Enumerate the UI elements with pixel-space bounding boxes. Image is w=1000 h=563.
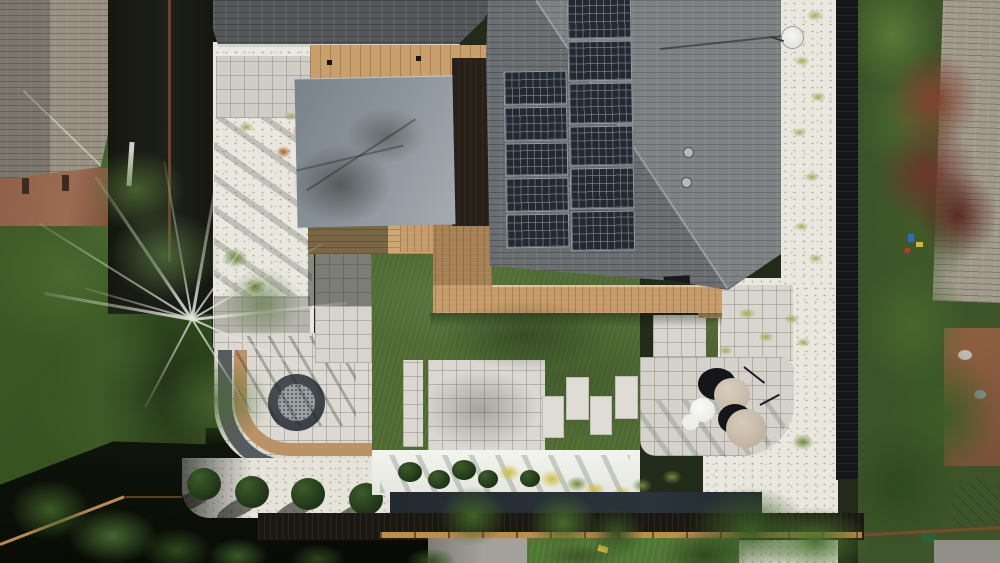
stepping-stone <box>591 397 611 434</box>
toy-yellow <box>916 242 923 247</box>
boardwalk-tree <box>588 508 644 558</box>
neighbor-pavement <box>934 540 1000 563</box>
ornamental-grass <box>796 338 811 347</box>
solar-panel <box>571 210 636 252</box>
tree-shadow-on-turf <box>440 300 610 370</box>
stepping-stone <box>543 397 563 437</box>
solar-panel <box>504 106 568 141</box>
roof-vent <box>684 148 693 157</box>
solar-panel <box>570 167 635 209</box>
deck-steps-shadow <box>308 224 388 254</box>
ornamental-grass <box>794 222 809 231</box>
rusty-fence-rail <box>168 0 171 262</box>
solar-panel <box>568 82 633 124</box>
yellow-flower-clump <box>498 464 520 481</box>
beige-umbrella <box>726 409 766 448</box>
pergola-post <box>416 56 421 61</box>
deck-post <box>62 175 69 191</box>
solar-panel <box>506 214 570 249</box>
ball-shrub <box>187 468 221 500</box>
deck-post <box>22 178 29 194</box>
toy-red <box>905 248 910 253</box>
maple-tree-burgundy <box>918 170 998 260</box>
rust-plant <box>276 146 291 158</box>
tree-shadow-on-patio <box>420 370 540 450</box>
small-plant <box>222 248 248 268</box>
ornamental-grass <box>718 346 733 355</box>
deck-shade-strip <box>452 58 492 226</box>
solar-panel-column-right <box>567 0 635 252</box>
solar-panel <box>503 70 567 105</box>
stepping-stone <box>567 378 588 419</box>
small-shrub <box>662 470 682 484</box>
solar-panel <box>505 178 569 213</box>
ornamental-grass <box>238 122 254 132</box>
deck-edge-highlight <box>492 285 722 287</box>
wall-shrub <box>452 460 476 480</box>
wall-shrub <box>632 478 652 493</box>
ornamental-grass <box>784 314 800 324</box>
ornamental-grass <box>758 332 774 342</box>
ornamental-grass <box>804 172 820 182</box>
yellow-flower-clump <box>540 470 564 488</box>
solar-panel-column-left <box>503 70 569 248</box>
shade-canopy <box>294 75 455 227</box>
neighbor-left-roof <box>0 0 118 178</box>
ornamental-grass <box>808 254 823 263</box>
ball-shrub <box>235 476 269 508</box>
ball-shrub <box>291 478 325 510</box>
aerial-backyard-photo <box>0 0 1000 563</box>
boardwalk-tree <box>440 486 506 546</box>
pergola-post <box>327 60 332 65</box>
solar-panel <box>567 0 632 39</box>
wall-shrub <box>478 470 498 488</box>
satellite-dish <box>782 27 803 48</box>
roof-shade-side <box>0 0 50 178</box>
small-plant <box>244 278 266 295</box>
boardwalk-tree <box>528 492 598 554</box>
stepping-stone <box>616 377 637 418</box>
wall-shrub <box>520 470 540 487</box>
ornamental-grass <box>738 308 756 319</box>
ornamental-grass <box>794 56 810 66</box>
toy-blue <box>908 234 914 242</box>
ornamental-grass <box>806 10 824 21</box>
right-neighbor-yard <box>858 0 1000 563</box>
garage-roof <box>213 0 495 49</box>
ornamental-grass <box>792 128 807 137</box>
wall-shrub <box>398 462 422 482</box>
small-shrub <box>792 434 814 450</box>
solar-panel <box>568 40 633 82</box>
solar-panel <box>505 142 569 177</box>
white-umbrella-small <box>682 414 699 430</box>
roof-vent <box>682 178 691 187</box>
walkway-shadow <box>308 248 372 306</box>
ornamental-grass <box>810 92 826 102</box>
solar-panel <box>569 125 634 167</box>
side-yard-shadow <box>108 0 216 314</box>
wall-shrub <box>428 470 450 489</box>
